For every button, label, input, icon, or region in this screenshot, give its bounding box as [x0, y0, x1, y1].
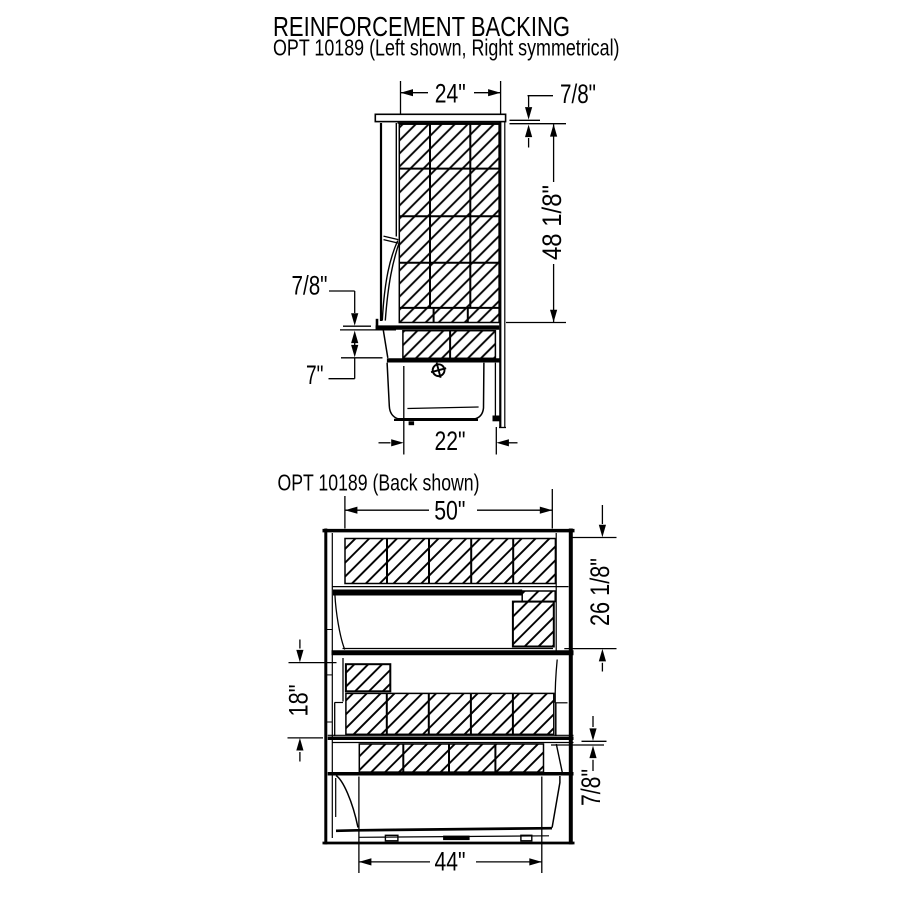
svg-text:7/8": 7/8"	[560, 79, 596, 109]
svg-text:22": 22"	[435, 426, 466, 456]
svg-text:7/8": 7/8"	[576, 769, 606, 806]
svg-text:50": 50"	[434, 495, 465, 525]
svg-text:7": 7"	[306, 360, 324, 390]
svg-text:26 1/8": 26 1/8"	[585, 558, 615, 626]
svg-text:48 1/8": 48 1/8"	[537, 185, 567, 260]
svg-text:18": 18"	[284, 685, 314, 717]
svg-text:OPT 10189 (Left shown, Right s: OPT 10189 (Left shown, Right symmetrical…	[273, 35, 620, 61]
svg-text:24": 24"	[435, 79, 466, 109]
svg-text:OPT 10189 (Back shown): OPT 10189 (Back shown)	[278, 470, 480, 496]
svg-text:7/8": 7/8"	[292, 271, 328, 301]
svg-text:44": 44"	[435, 846, 466, 876]
